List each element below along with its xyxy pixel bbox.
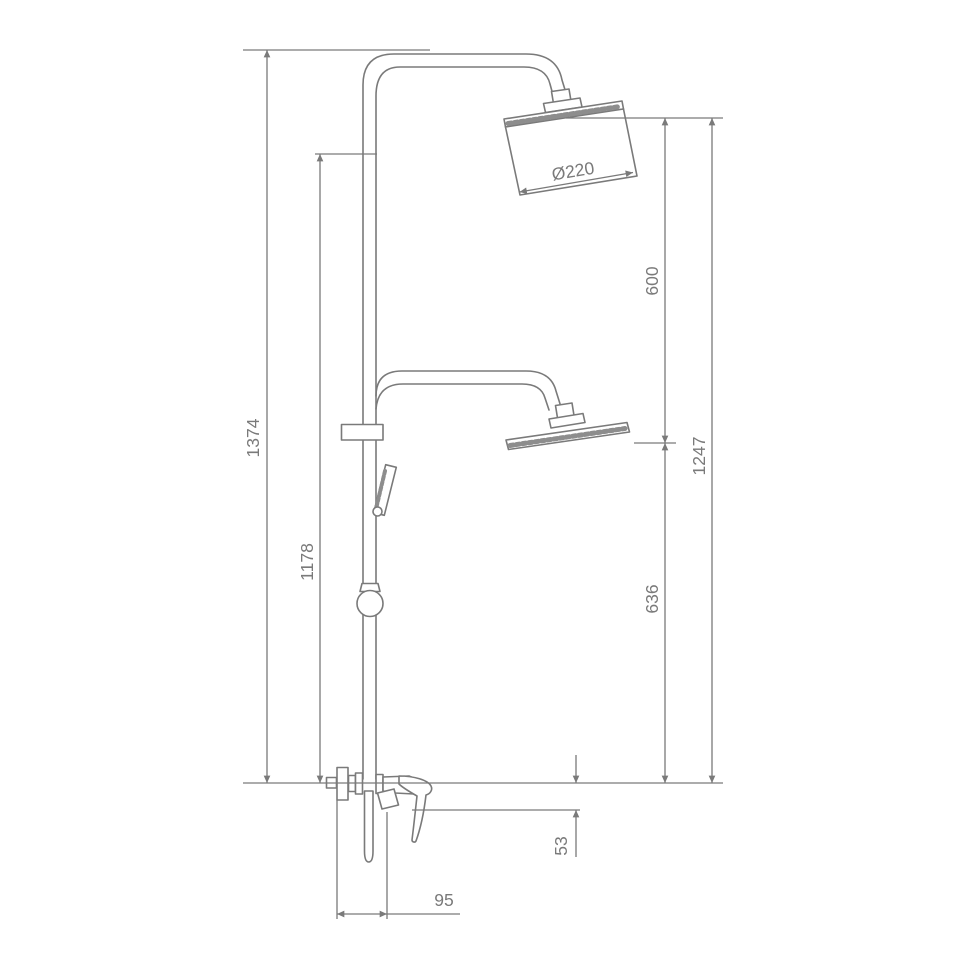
spout-outlet [365, 791, 374, 862]
ball-joint [357, 584, 383, 617]
valve-lever-handle [399, 776, 432, 842]
dim-95-label: 95 [434, 890, 453, 910]
mixer-valve [327, 768, 432, 863]
dim-rail-height-label: 1178 [297, 543, 317, 581]
dim-total-height-label: 1374 [243, 418, 263, 457]
technical-drawing-page: 1374 1178 600 1247 636 53 95 Ø220 [0, 0, 970, 970]
lower-head-connector [549, 403, 585, 428]
dim-53-label: 53 [551, 836, 571, 855]
lower-shower-arm [376, 371, 561, 410]
hand-shower-hook [373, 507, 382, 516]
diverter-knob [378, 789, 399, 809]
dim-600-label: 600 [642, 266, 662, 295]
lower-shower-head [506, 423, 630, 450]
shower-technical-drawing: 1374 1178 600 1247 636 53 95 Ø220 [0, 0, 970, 970]
dim-1247-label: 1247 [689, 437, 709, 476]
wall-plate [337, 768, 348, 801]
dim-636-label: 636 [642, 584, 662, 613]
slider-bracket [342, 425, 384, 441]
